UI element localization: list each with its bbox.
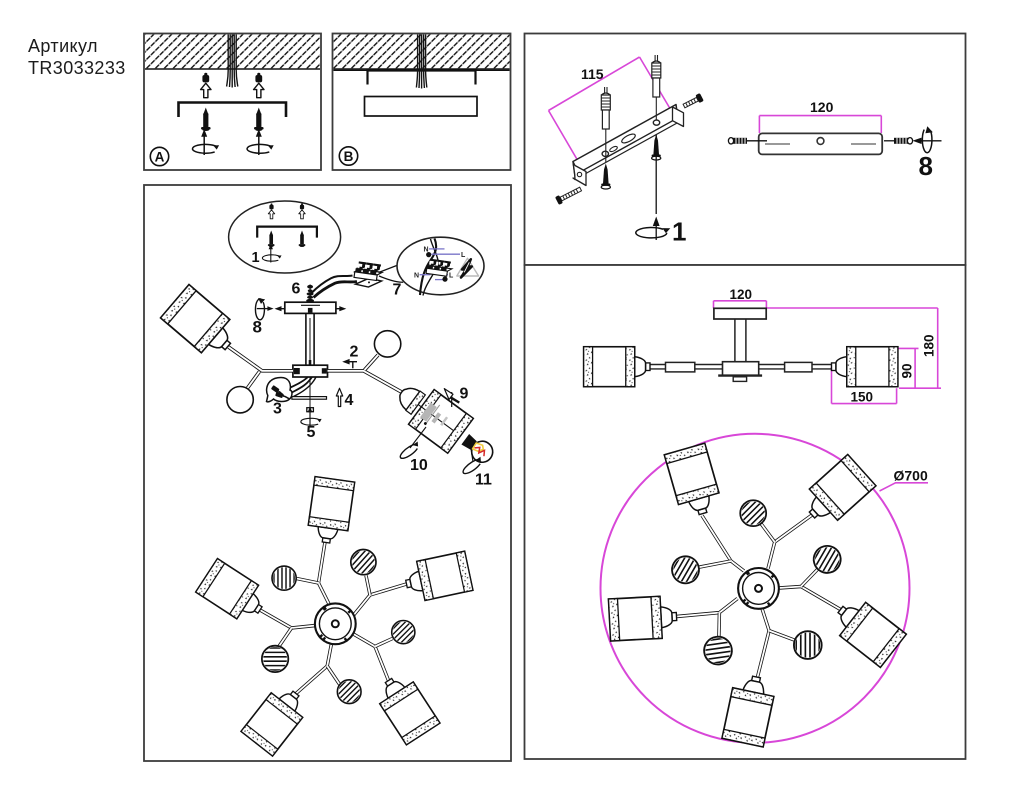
svg-text:8: 8	[253, 318, 262, 337]
svg-text:1: 1	[252, 250, 260, 266]
svg-text:9: 9	[460, 386, 469, 403]
svg-text:10: 10	[410, 457, 428, 474]
svg-text:L: L	[449, 273, 454, 280]
svg-text:1: 1	[672, 217, 686, 247]
svg-text:11: 11	[475, 472, 492, 489]
svg-text:120: 120	[810, 99, 834, 115]
svg-text:5: 5	[307, 424, 316, 441]
svg-text:115: 115	[581, 66, 604, 82]
svg-text:L: L	[461, 252, 466, 259]
svg-text:Ø700: Ø700	[894, 468, 928, 484]
svg-text:TR3033233: TR3033233	[28, 58, 126, 78]
svg-text:150: 150	[851, 390, 874, 405]
svg-text:N: N	[414, 273, 419, 280]
svg-text:B: B	[344, 149, 354, 164]
svg-text:Артикул: Артикул	[28, 36, 98, 56]
svg-text:2: 2	[350, 344, 359, 361]
svg-text:3: 3	[273, 401, 282, 418]
svg-text:120: 120	[730, 287, 753, 302]
svg-text:A: A	[155, 150, 165, 165]
svg-text:90: 90	[900, 363, 915, 378]
svg-text:8: 8	[919, 151, 933, 181]
svg-text:7: 7	[393, 282, 402, 299]
svg-text:4: 4	[345, 392, 354, 409]
svg-text:180: 180	[922, 334, 937, 357]
svg-text:6: 6	[292, 281, 301, 298]
